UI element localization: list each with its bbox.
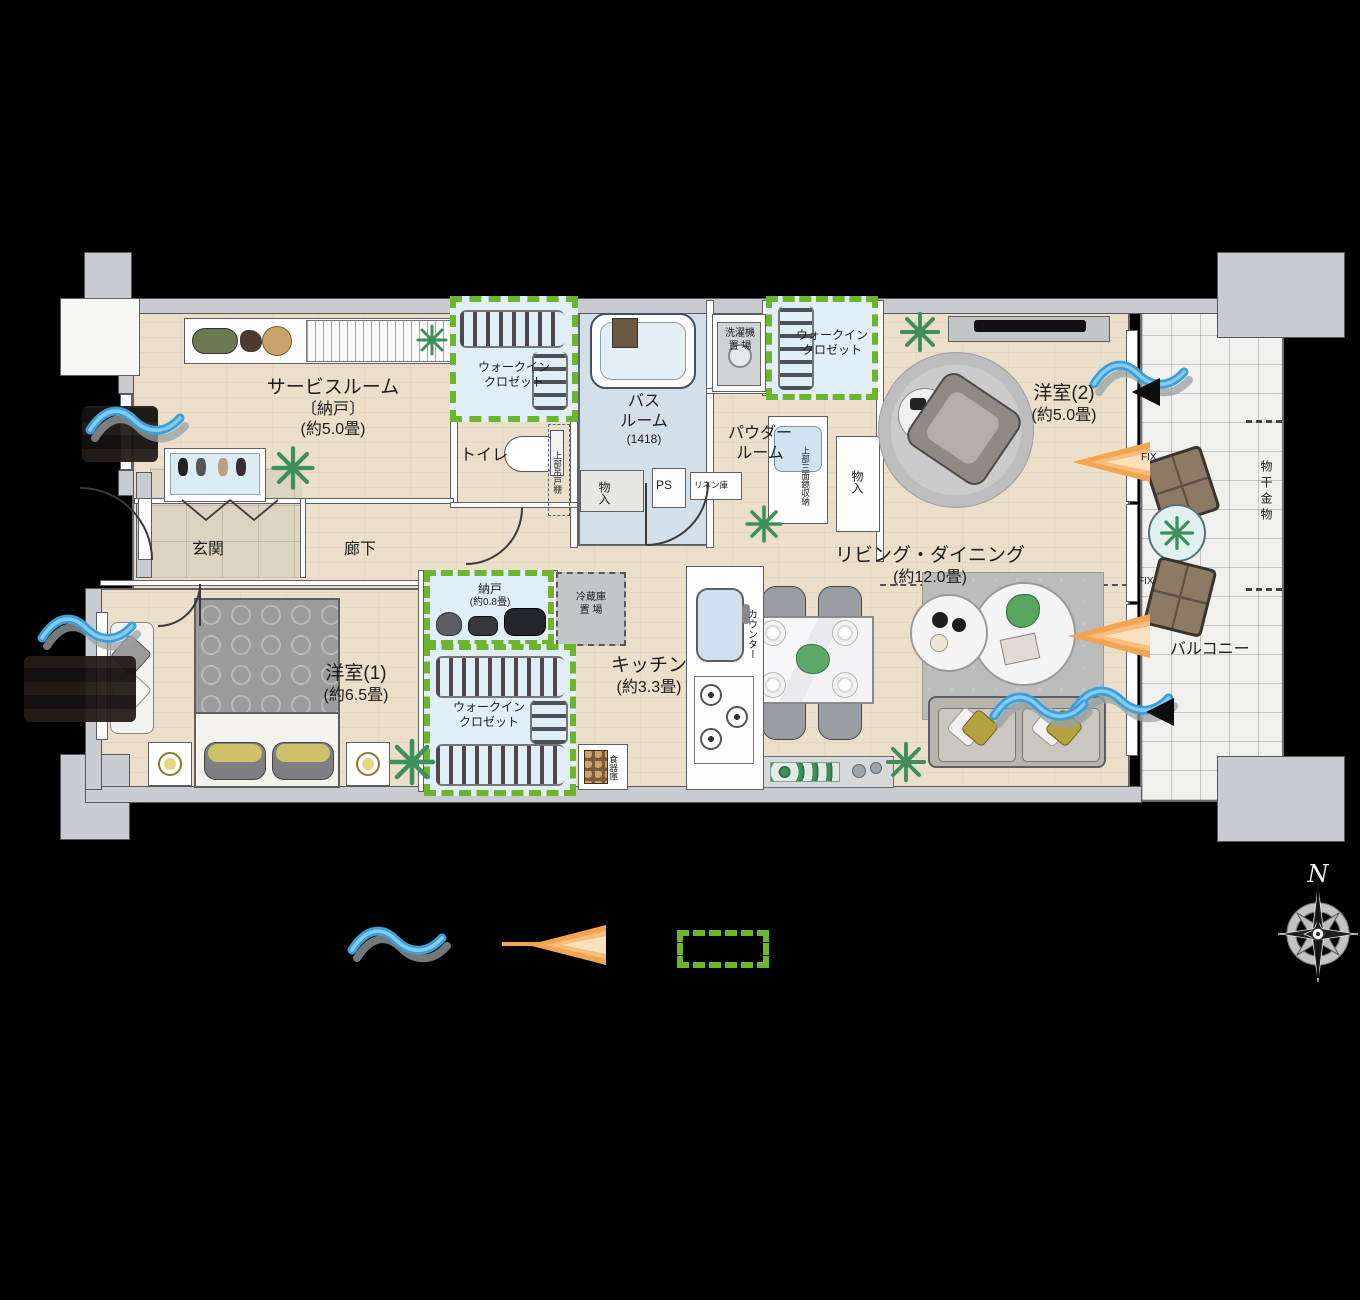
- compass-north-label: N: [1307, 860, 1330, 888]
- washer-l1: 洗濯機: [714, 328, 766, 341]
- bedroom2-size: (約5.0畳): [1004, 406, 1124, 426]
- service-room-size: (約5.0畳): [238, 420, 428, 440]
- ps-label: PS: [656, 478, 672, 493]
- plant-powder: [747, 507, 781, 541]
- service-room-sub: 〔納戸〕: [238, 400, 428, 420]
- bath-size: (1418): [596, 432, 692, 447]
- bedroom2-label: 洋室(2) (約5.0畳): [1004, 382, 1124, 426]
- washer-l2: 置 場: [714, 341, 766, 354]
- counter-label: カウンター: [744, 596, 757, 672]
- living-label: リビング・ダイニング (約12.0畳): [820, 544, 1040, 588]
- legend-sunlight-icon: [502, 925, 606, 965]
- wic3-label: ウォークイン クロゼット: [434, 700, 544, 730]
- balcony-label: バルコニー: [1170, 640, 1250, 660]
- plant-bedroom2: [902, 314, 938, 350]
- breeze-wave-entrance: [90, 411, 185, 438]
- service-room-label: サービスルーム 〔納戸〕 (約5.0畳): [238, 376, 428, 440]
- plant-genkan: [273, 448, 312, 487]
- bedroom2-name: 洋室(2): [1004, 382, 1124, 406]
- plant-bedroom1: [391, 741, 433, 783]
- drying-fitting-label: 物干金物: [1258, 446, 1273, 538]
- kitchen-name: キッチン: [584, 654, 714, 678]
- service-room-name: サービスルーム: [238, 376, 428, 400]
- bath-l2: ルーム: [596, 412, 692, 432]
- kitchen-label: キッチン (約3.3畳): [584, 654, 714, 698]
- bedroom1-size: (約6.5畳): [296, 686, 416, 706]
- floor-plan: N サービスルーム 〔納戸〕 (約5.0畳) ウォークイン クロゼット トイレ …: [0, 0, 1360, 1300]
- wic2-label: ウォークイン クロゼット: [790, 328, 874, 358]
- genkan-label: 玄関: [192, 540, 224, 560]
- breeze-wave-bedroom1: [42, 619, 137, 646]
- bedroom1-name: 洋室(1): [296, 662, 416, 686]
- wic1-label: ウォークイン クロゼット: [452, 360, 576, 390]
- compass-rose-icon: N: [1276, 860, 1360, 982]
- toilet-upper-cabinet-label: 上部吊戸棚: [552, 432, 563, 512]
- hall-label: 廊下: [344, 540, 376, 560]
- nando-label: 納戸 (約0.8畳): [434, 582, 546, 610]
- plant-service-shelf: [418, 326, 446, 354]
- plant-balcony-table: [1162, 518, 1193, 549]
- dish-cabinet-label: 食器庫: [608, 748, 619, 788]
- bath-l1: バス: [596, 392, 692, 412]
- fridge-label: 冷蔵庫 置 場: [560, 592, 622, 617]
- bedroom1-label: 洋室(1) (約6.5畳): [296, 662, 416, 706]
- linen-label: リネン庫: [694, 480, 728, 491]
- sunlight-beam-living: [1068, 614, 1150, 658]
- legend-breeze-icon: [352, 931, 447, 958]
- kitchen-size: (約3.3畳): [584, 678, 714, 698]
- overlay-graphics: N: [0, 0, 1360, 1300]
- powder-storage-label: 物入: [849, 452, 864, 512]
- bath-storage-label: 物入: [596, 476, 611, 510]
- sunlight-beam-bedroom2: [1072, 442, 1150, 482]
- fix-label-2: FIX: [1138, 576, 1154, 589]
- mirror-cabinet-label: 上部三面鏡収納: [800, 428, 811, 524]
- living-size: (約12.0畳): [820, 568, 1040, 588]
- breeze-wave-living-2: [994, 697, 1089, 724]
- washer-label: 洗濯機 置 場: [714, 328, 766, 353]
- nando-size: (約0.8畳): [434, 597, 546, 610]
- bath-label: バス ルーム (1418): [596, 392, 692, 447]
- living-name: リビング・ダイニング: [820, 544, 1040, 568]
- powder-l2: ルーム: [712, 444, 808, 464]
- powder-l1: パウダー: [712, 424, 808, 444]
- nando-name: 納戸: [434, 582, 546, 597]
- toilet-label: トイレ: [460, 446, 508, 466]
- plant-living: [888, 744, 924, 780]
- fix-label-1: FIX: [1141, 452, 1157, 465]
- powder-label: パウダー ルーム: [712, 424, 808, 464]
